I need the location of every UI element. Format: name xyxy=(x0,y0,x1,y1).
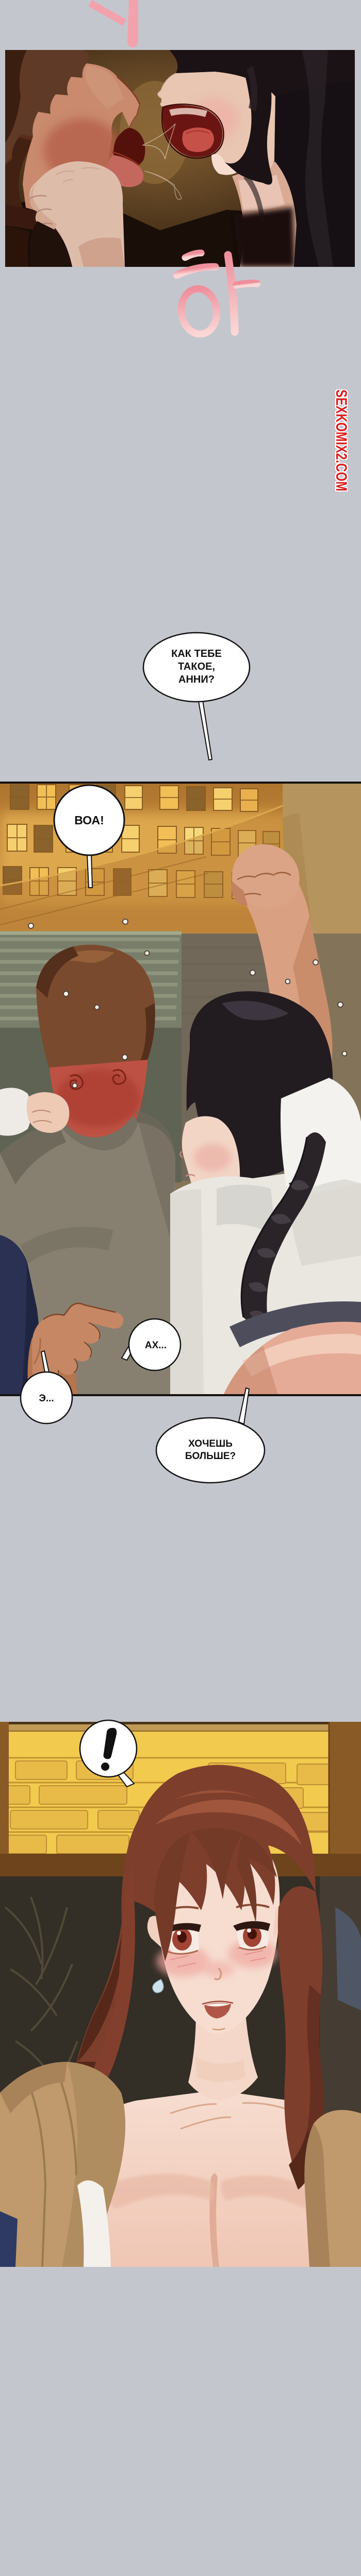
svg-text:АННИ?: АННИ? xyxy=(178,674,215,685)
svg-text:ВОА!: ВОА! xyxy=(74,814,104,827)
svg-text:Э...: Э... xyxy=(39,1393,54,1404)
svg-text:КАК ТЕБЕ: КАК ТЕБЕ xyxy=(171,648,222,659)
svg-text:БОЛЬШЕ?: БОЛЬШЕ? xyxy=(185,1451,236,1462)
svg-text:ТАКОЕ,: ТАКОЕ, xyxy=(178,661,215,672)
svg-text:АХ...: АХ... xyxy=(145,1340,167,1351)
svg-text:ХОЧЕШЬ: ХОЧЕШЬ xyxy=(188,1438,233,1449)
